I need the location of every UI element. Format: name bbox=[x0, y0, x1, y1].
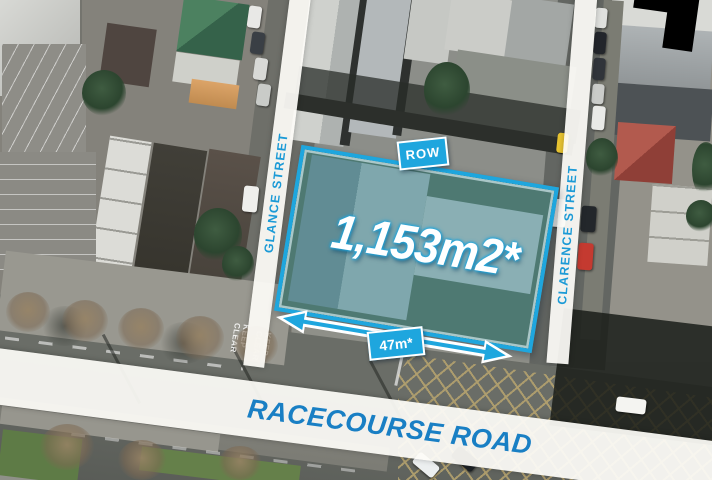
building-roof-red bbox=[614, 122, 676, 184]
car bbox=[591, 105, 606, 130]
car bbox=[577, 243, 594, 271]
tree-bare bbox=[62, 300, 108, 342]
tree-bare bbox=[6, 292, 50, 332]
car bbox=[591, 84, 605, 105]
frontage-badge-label: 47m* bbox=[379, 334, 414, 353]
tree-bare bbox=[218, 446, 262, 480]
tree-bare bbox=[118, 308, 164, 350]
tree-bare bbox=[118, 440, 166, 480]
tree bbox=[686, 200, 712, 232]
tree-bare bbox=[176, 316, 224, 360]
parking-lot bbox=[2, 44, 86, 162]
row-badge: ROW bbox=[397, 136, 450, 170]
tree bbox=[424, 62, 470, 118]
building-roof bbox=[444, 0, 513, 58]
tree bbox=[222, 246, 254, 282]
tree-bare bbox=[40, 424, 94, 470]
aerial-property-listing: KEEP CLEAR KEEP CLEAR GLANCE STREET CLAR… bbox=[0, 0, 712, 480]
car bbox=[580, 206, 597, 233]
car bbox=[242, 185, 260, 212]
tree bbox=[692, 142, 712, 198]
car bbox=[593, 32, 607, 55]
car bbox=[592, 58, 606, 81]
tree bbox=[586, 138, 618, 178]
building-roof bbox=[176, 0, 249, 60]
row-badge-label: ROW bbox=[405, 144, 441, 163]
frontage-badge: 47m* bbox=[367, 326, 426, 361]
tree bbox=[82, 70, 126, 116]
